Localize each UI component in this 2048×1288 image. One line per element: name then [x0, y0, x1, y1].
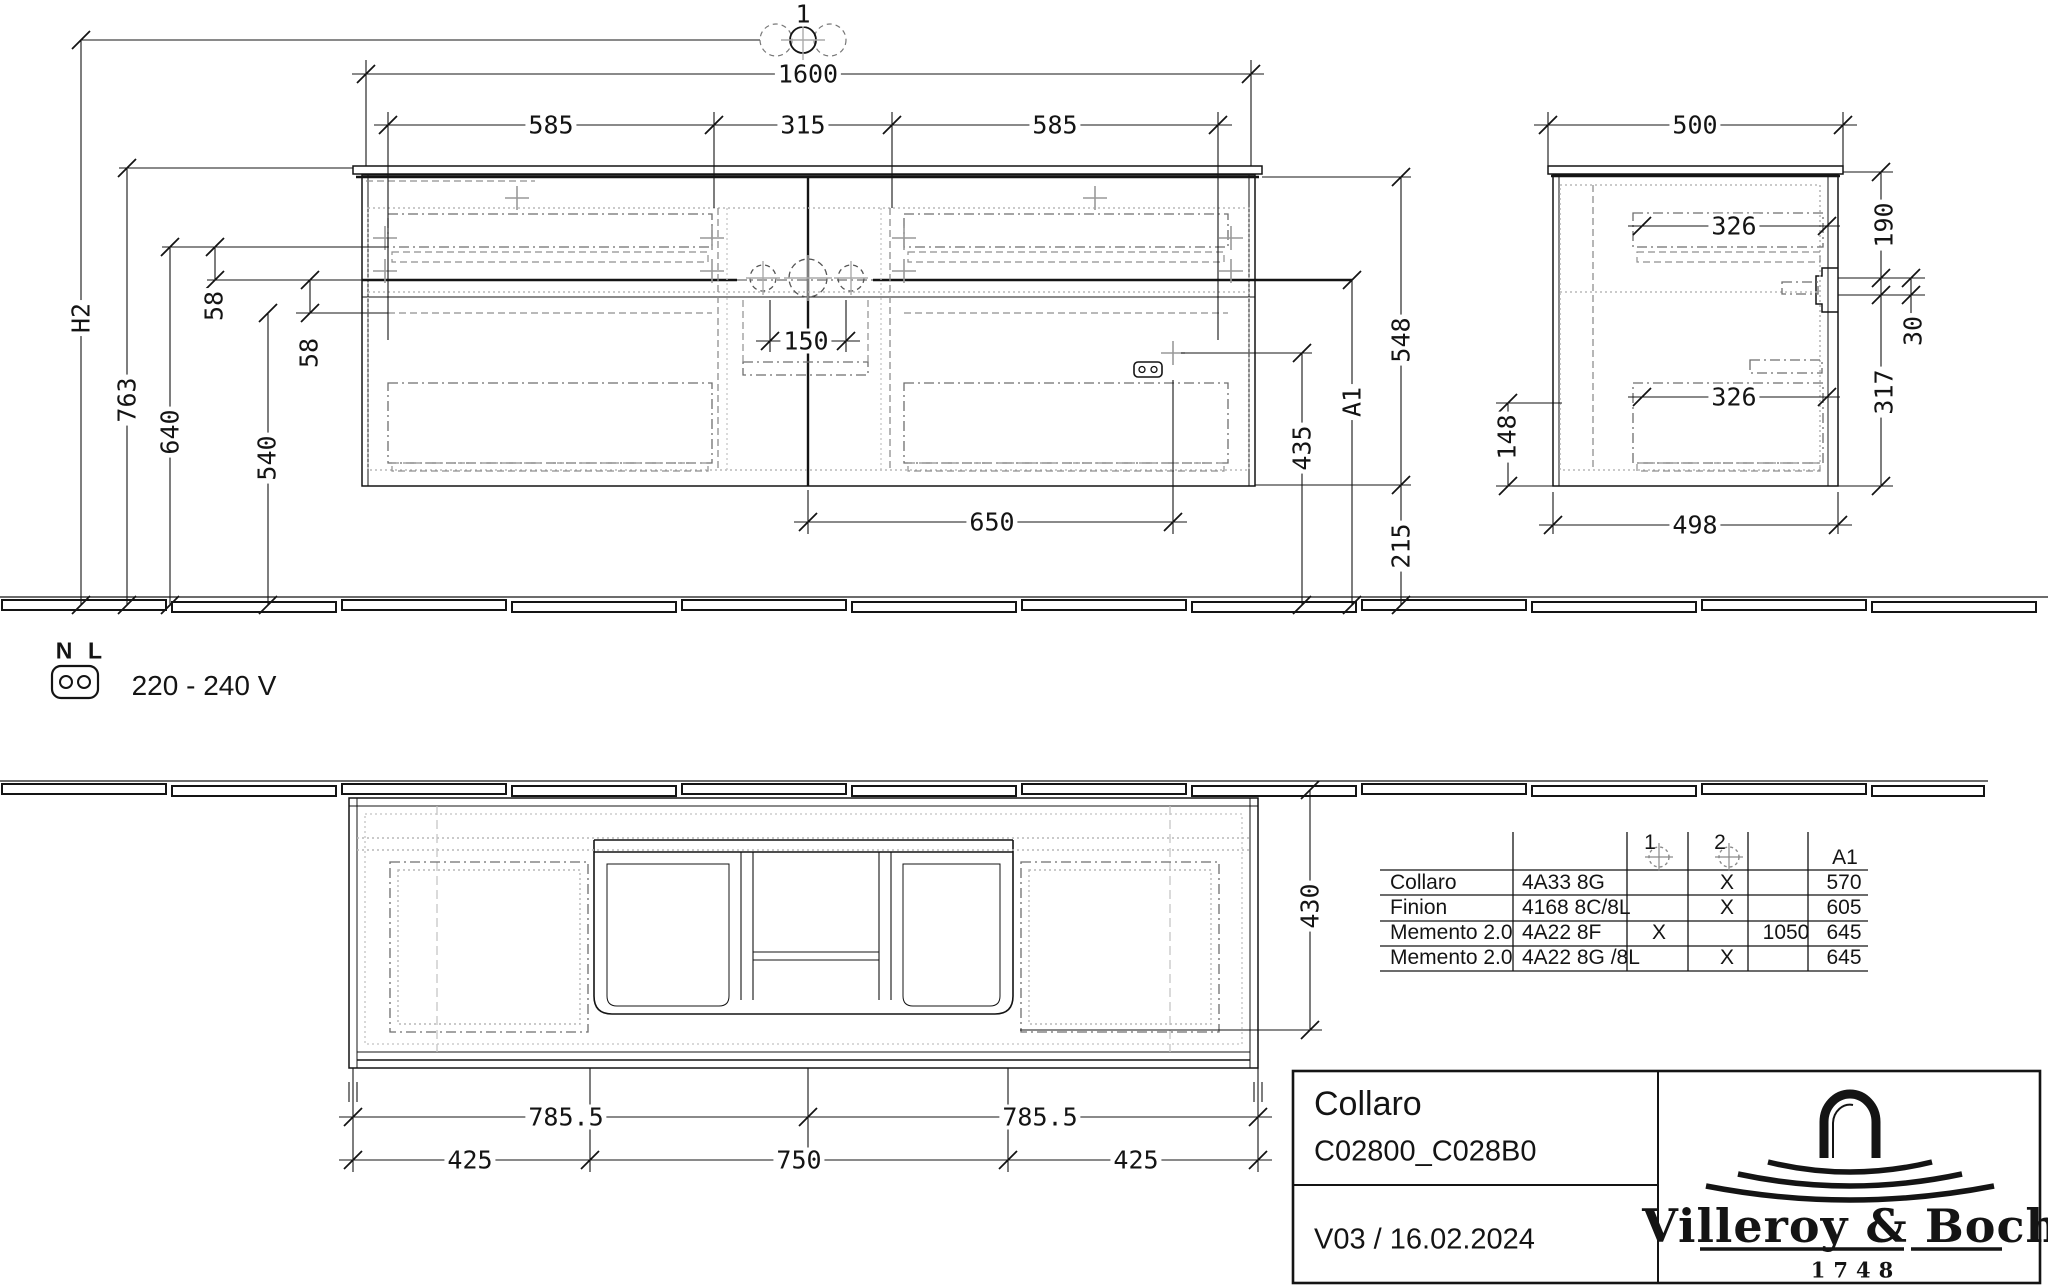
- dim-left-drawer: 585: [525, 113, 576, 138]
- table-row-a1: 645: [1826, 946, 1861, 970]
- dim-drawer-depth-top: 326: [1708, 214, 1759, 239]
- table-row-article: 4A33 8G: [1522, 871, 1605, 895]
- table-row-qty: 1050: [1763, 921, 1810, 945]
- table-row-article: 4168 8C/8L: [1522, 896, 1631, 920]
- drawing-linework: [0, 0, 2048, 1288]
- dim-640: 640: [158, 406, 183, 457]
- dim-drawer-depth-bottom: 326: [1708, 385, 1759, 410]
- dim-190: 190: [1872, 199, 1897, 250]
- dim-center-section: 315: [777, 113, 828, 138]
- dim-socket-height: 435: [1290, 422, 1315, 473]
- dim-right-drawer: 585: [1029, 113, 1080, 138]
- dim-58-top: 58: [202, 288, 227, 324]
- socket-l-label: L: [85, 640, 105, 663]
- dim-counter-height: 763: [115, 374, 140, 425]
- brand-wordmark: Villeroy & Boch: [1639, 1203, 2048, 1249]
- dim-30: 30: [1901, 313, 1926, 349]
- table-row-a1: 570: [1826, 871, 1861, 895]
- dim-body-height: 548: [1389, 314, 1414, 365]
- dim-faucet-spacing: 150: [780, 329, 831, 354]
- socket-n-label: N: [53, 640, 76, 663]
- table-header-col1: 1: [1644, 831, 1656, 855]
- table-row-col1: X: [1652, 921, 1666, 945]
- dim-clearance: 215: [1389, 520, 1414, 571]
- table-row-name: Memento 2.0: [1390, 946, 1513, 970]
- dim-a1: A1: [1340, 384, 1365, 420]
- dim-basin-front: 430: [1298, 880, 1323, 931]
- dim-center-right: 785.5: [999, 1105, 1080, 1130]
- dim-plan-middle: 750: [773, 1148, 824, 1173]
- tap-hole-marker-icon: [81, 20, 846, 60]
- power-socket-icon: [52, 666, 98, 698]
- table-header-col2: 2: [1714, 831, 1726, 855]
- table-row-name: Collaro: [1390, 871, 1457, 895]
- table-row-a1: 605: [1826, 896, 1861, 920]
- table-row-article: 4A22 8F: [1522, 921, 1601, 945]
- front-socket-icon: [1134, 362, 1162, 377]
- side-view-outline: [1548, 166, 1843, 486]
- dim-plan-right: 425: [1110, 1148, 1161, 1173]
- table-row-col2: X: [1720, 896, 1734, 920]
- dim-317: 317: [1872, 366, 1897, 417]
- product-code: C02800_C028B0: [1311, 1138, 1540, 1167]
- dim-total-width: 1600: [775, 62, 841, 87]
- table-row-col2: X: [1720, 946, 1734, 970]
- dim-center-left: 785.5: [525, 1105, 606, 1130]
- table-row-name: Memento 2.0: [1390, 921, 1513, 945]
- dim-socket-offset: 650: [966, 510, 1017, 535]
- dim-h2: H2: [69, 300, 94, 336]
- table-header-a1: A1: [1832, 846, 1858, 870]
- table-row-col2: X: [1720, 871, 1734, 895]
- floor-line: [0, 597, 2048, 612]
- plan-view-basin: [594, 840, 1013, 1014]
- dim-plan-left: 425: [444, 1148, 495, 1173]
- wall-line: [0, 781, 1988, 796]
- table-row-article: 4A22 8G /8L: [1522, 946, 1640, 970]
- dim-540: 540: [255, 432, 280, 483]
- version-date: V03 / 16.02.2024: [1311, 1226, 1538, 1255]
- dim-total-depth: 500: [1669, 113, 1720, 138]
- dim-148: 148: [1495, 411, 1520, 462]
- brand-year: 1748: [1808, 1260, 1904, 1281]
- plan-view-internals: [357, 806, 1250, 1052]
- voltage-label: 220 - 240 V: [129, 672, 280, 700]
- product-name: Collaro: [1311, 1087, 1425, 1121]
- detail-marker-label: 1: [792, 2, 813, 27]
- side-view-internals: [1560, 185, 1823, 471]
- front-view-dimensions: [72, 31, 1411, 614]
- table-row-a1: 645: [1826, 921, 1861, 945]
- dim-58-bottom: 58: [297, 335, 322, 371]
- table-row-name: Finion: [1390, 896, 1447, 920]
- dim-bottom-depth: 498: [1669, 513, 1720, 538]
- technical-drawing-sheet: 1 1600 585 315 585 H2 763 640 58 58 540 …: [0, 0, 2048, 1288]
